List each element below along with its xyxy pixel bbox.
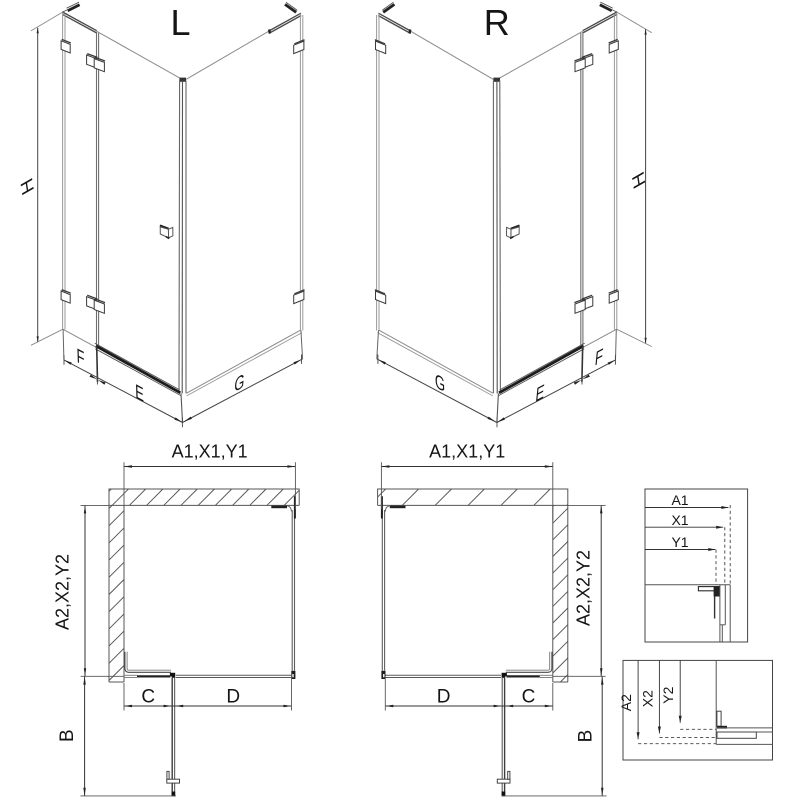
svg-text:L: L <box>170 2 190 43</box>
svg-text:F: F <box>76 343 85 370</box>
svg-text:R: R <box>484 2 510 43</box>
svg-text:A2,X2,Y2: A2,X2,Y2 <box>574 550 594 626</box>
svg-text:C: C <box>522 686 536 707</box>
svg-text:C: C <box>141 686 155 707</box>
svg-text:A2,X2,Y2: A2,X2,Y2 <box>52 554 72 630</box>
svg-text:A1,X1,Y1: A1,X1,Y1 <box>172 442 248 462</box>
svg-text:A2: A2 <box>618 694 634 711</box>
svg-text:A1,X1,Y1: A1,X1,Y1 <box>429 442 505 462</box>
svg-text:Y2: Y2 <box>660 686 676 703</box>
svg-text:D: D <box>226 687 240 708</box>
svg-text:D: D <box>437 687 451 708</box>
svg-text:A1: A1 <box>671 492 688 508</box>
svg-text:Y1: Y1 <box>671 534 688 550</box>
svg-text:B: B <box>576 730 597 743</box>
svg-text:B: B <box>57 729 78 742</box>
svg-text:X1: X1 <box>671 512 688 528</box>
svg-text:X2: X2 <box>639 690 655 707</box>
